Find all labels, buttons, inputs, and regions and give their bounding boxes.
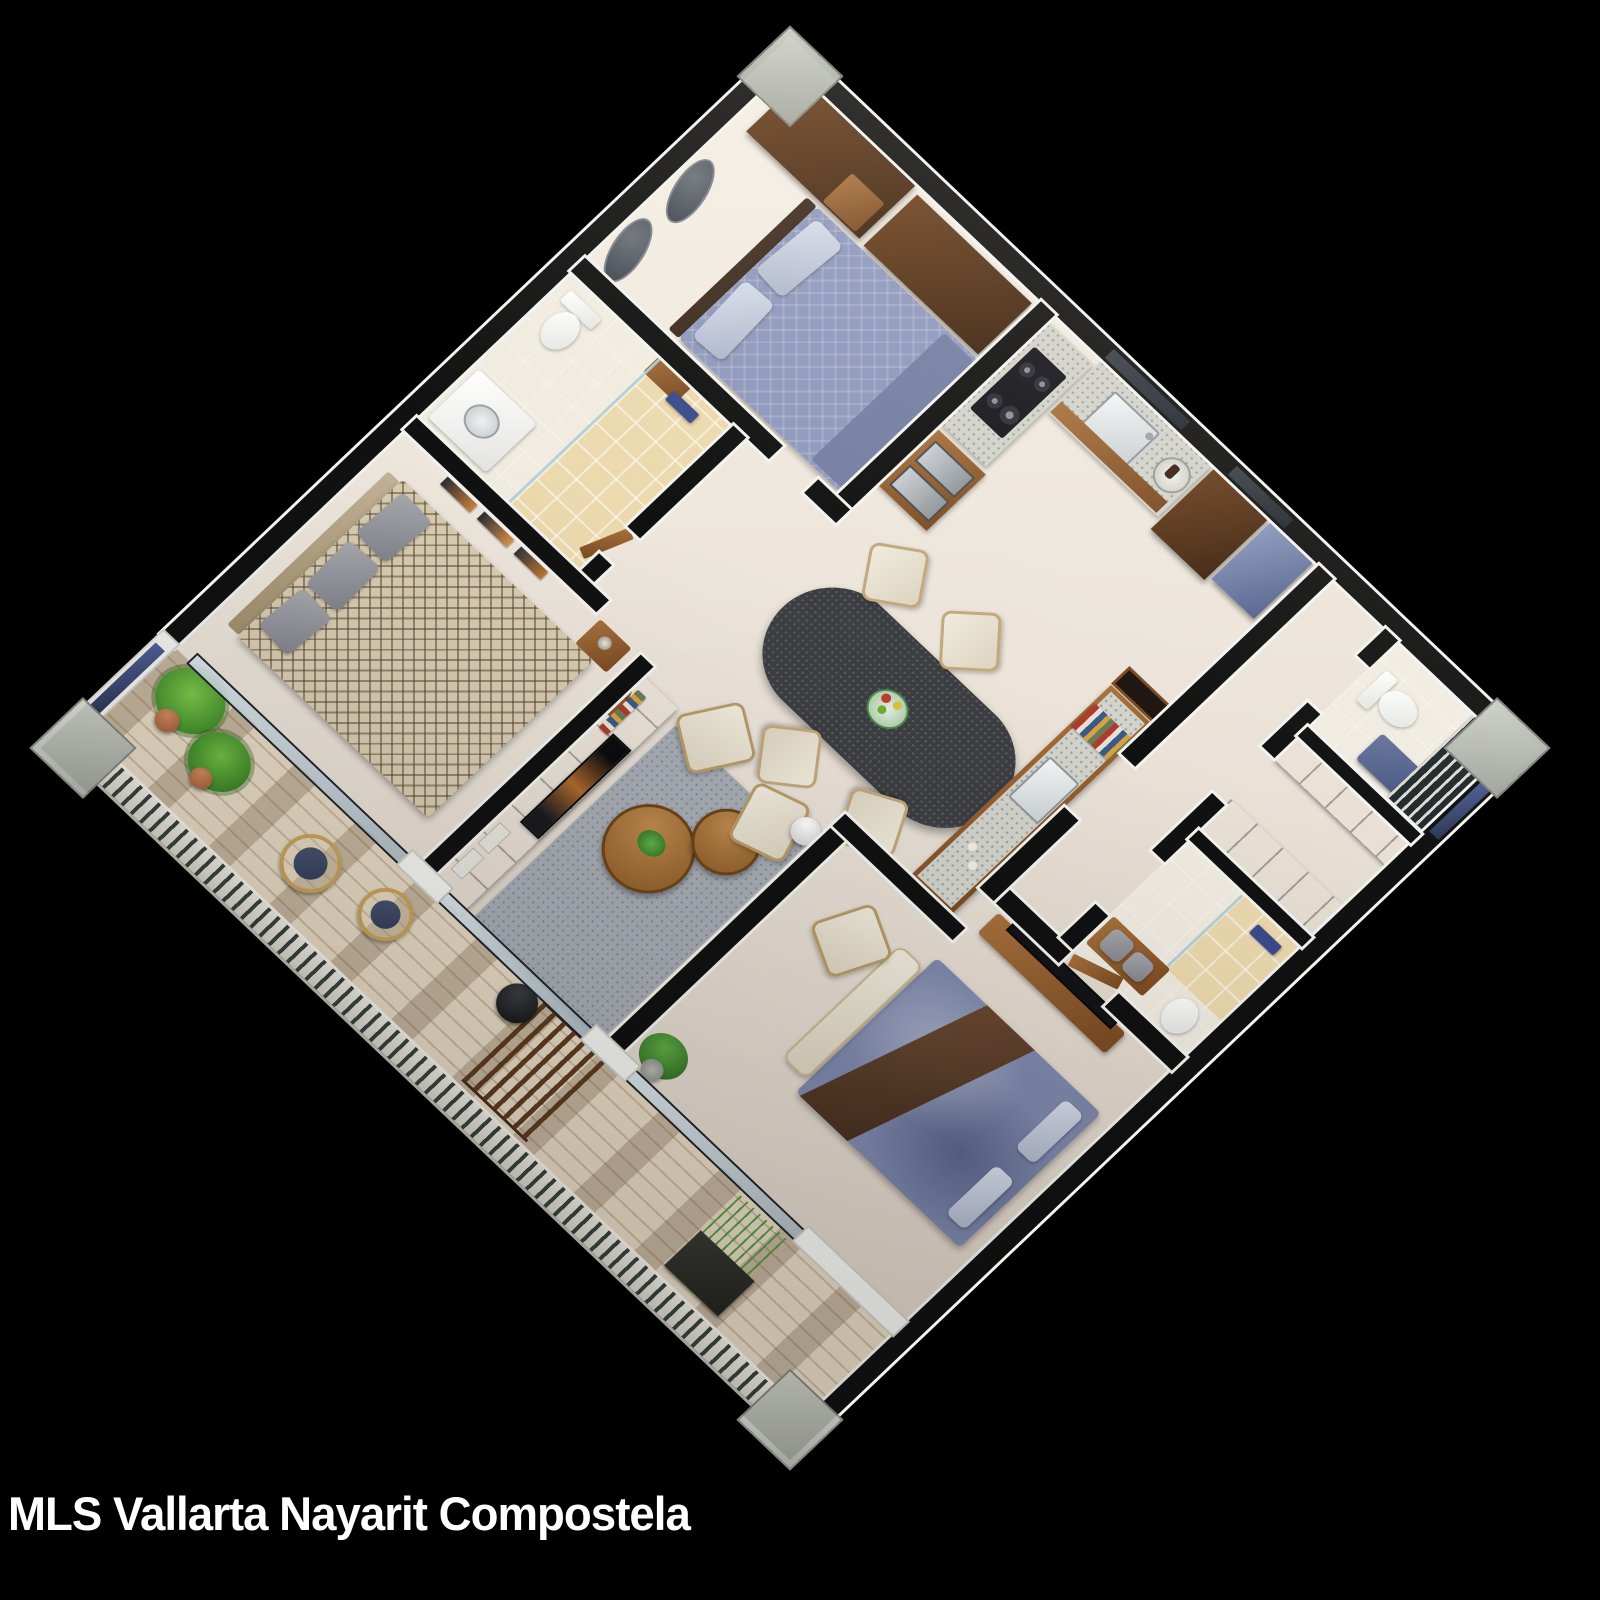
- chair-cushion: [364, 894, 407, 935]
- dining-chair: [756, 724, 823, 789]
- floor-plan-stage: MLS Vallarta Nayarit Compostela: [0, 0, 1600, 1600]
- dining-chair: [939, 610, 1002, 672]
- chair-cushion: [286, 840, 335, 886]
- dining-chair: [860, 541, 930, 609]
- caption: MLS Vallarta Nayarit Compostela: [8, 1486, 690, 1541]
- isometric-plan: [40, 36, 1539, 1460]
- apartment-plan: [40, 36, 1539, 1460]
